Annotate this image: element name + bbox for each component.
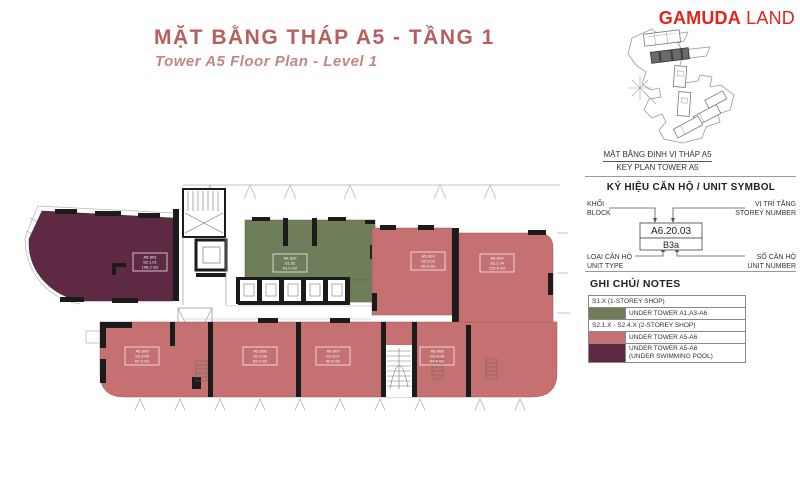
legend-s1-label: S1.X (1-STOREY SHOP) xyxy=(589,296,746,308)
unit-shop-top-a: A5.S03 S2.2.03 95.8 m2 xyxy=(372,225,452,315)
symbol-example-code: A6.20.03 xyxy=(651,226,691,237)
legend-row-s1: UNDER TOWER A1,A3-A6 xyxy=(589,308,746,320)
page-title: MẶT BẰNG THÁP A5 - TẦNG 1 xyxy=(154,26,495,50)
divider xyxy=(585,176,796,177)
floor-plan: A5.S01 S2.1.01 198.2 m2 xyxy=(20,173,580,425)
svg-text:120.5 m2: 120.5 m2 xyxy=(489,266,506,271)
legend-pool-line2: (UNDER SWIMMING POOL) xyxy=(629,353,713,360)
keyplan-caption: MẶT BẰNG ĐỊNH VỊ THÁP A5 KEY PLAN TOWER … xyxy=(575,149,740,173)
keyplan-map xyxy=(622,26,742,148)
divider xyxy=(585,271,796,272)
svg-text:198.2 m2: 198.2 m2 xyxy=(142,265,159,270)
page: MẶT BẰNG THÁP A5 - TẦNG 1 Tower A5 Floor… xyxy=(0,0,800,479)
column-ticks xyxy=(135,399,525,410)
unit-symbol-title: KÝ HIỆU CĂN HỘ / UNIT SYMBOL xyxy=(585,182,797,193)
keyplan-buildings xyxy=(643,30,726,138)
door-swing-marks xyxy=(204,185,496,199)
legend-row-s1-header: S1.X (1-STOREY SHOP) xyxy=(589,296,746,308)
label-block-en: BLOCK xyxy=(587,210,611,217)
legend-pool-line1: UNDER TOWER A5-A6 xyxy=(629,345,697,352)
legend-s2-towers: UNDER TOWER A5-A6 xyxy=(626,332,746,344)
legend-swatch-pool xyxy=(589,344,626,363)
svg-text:95.8 m2: 95.8 m2 xyxy=(421,264,436,269)
notes-legend: S1.X (1-STOREY SHOP) UNDER TOWER A1,A3-A… xyxy=(588,295,746,363)
label-type-vi: LOẠI CĂN HỘ xyxy=(587,252,633,261)
keyplan-caption-en: KEY PLAN TOWER A5 xyxy=(616,163,698,172)
svg-text:90.6 m2: 90.6 m2 xyxy=(326,359,341,364)
legend-row-s2: UNDER TOWER A5-A6 xyxy=(589,332,746,344)
label-number-en: UNIT NUMBER xyxy=(748,263,796,269)
label-block-vi: KHỐI xyxy=(587,198,604,208)
stair-shaft xyxy=(386,345,412,397)
legend-row-pool: UNDER TOWER A5-A6 (UNDER SWIMMING POOL) xyxy=(589,344,746,363)
keyplan-tower-a5-highlight xyxy=(650,48,689,64)
page-subtitle: Tower A5 Floor Plan - Level 1 xyxy=(155,53,378,70)
unit-shop-top-b: A5.S04 S2.2.04 120.5 m2 xyxy=(459,230,553,323)
label-number-vi: SỐ CĂN HỘ xyxy=(757,251,797,261)
legend-pool-towers: UNDER TOWER A5-A6 (UNDER SWIMMING POOL) xyxy=(626,344,746,363)
legend-row-s2-header: S2.1.X - S2.4.X (2-STOREY SHOP) xyxy=(589,320,746,332)
keyplan-caption-vi: MẶT BẰNG ĐỊNH VỊ THÁP A5 xyxy=(603,149,711,162)
svg-text:87.3 m2: 87.3 m2 xyxy=(135,359,150,364)
symbol-example-type: B3a xyxy=(663,240,679,250)
bottom-shop-band: A5.S05 S2.3.05 87.3 m2 A5.S06 S2.3.06 92… xyxy=(100,318,557,397)
svg-text:92.0 m2: 92.0 m2 xyxy=(253,359,268,364)
unit-pool-shop: A5.S01 S2.1.01 198.2 m2 xyxy=(29,209,173,303)
party-wall xyxy=(452,228,459,322)
legend-s2-label: S2.1.X - S2.4.X (2-STOREY SHOP) xyxy=(589,320,746,332)
svg-text:91.0 m2: 91.0 m2 xyxy=(283,266,298,271)
notes-title: GHI CHÚ/ NOTES xyxy=(590,278,681,290)
legend-swatch-1storey xyxy=(589,308,626,320)
brand-gamuda: GAMUDA xyxy=(659,8,741,28)
corridor-wall xyxy=(238,301,350,305)
unit-symbol-diagram: KHỐI BLOCK VỊ TRÍ TẦNG STOREY NUMBER LOẠ… xyxy=(585,197,798,269)
svg-text:93.4 m2: 93.4 m2 xyxy=(430,359,445,364)
label-storey-en: STOREY NUMBER xyxy=(735,210,796,217)
brand-land: LAND xyxy=(746,8,795,28)
legend-swatch-2storey xyxy=(589,332,626,344)
lift-bank xyxy=(236,277,350,304)
label-type-en: UNIT TYPE xyxy=(587,263,624,269)
label-storey-vi: VỊ TRÍ TẦNG xyxy=(755,198,796,208)
legend-s1-towers: UNDER TOWER A1,A3-A6 xyxy=(626,308,746,320)
